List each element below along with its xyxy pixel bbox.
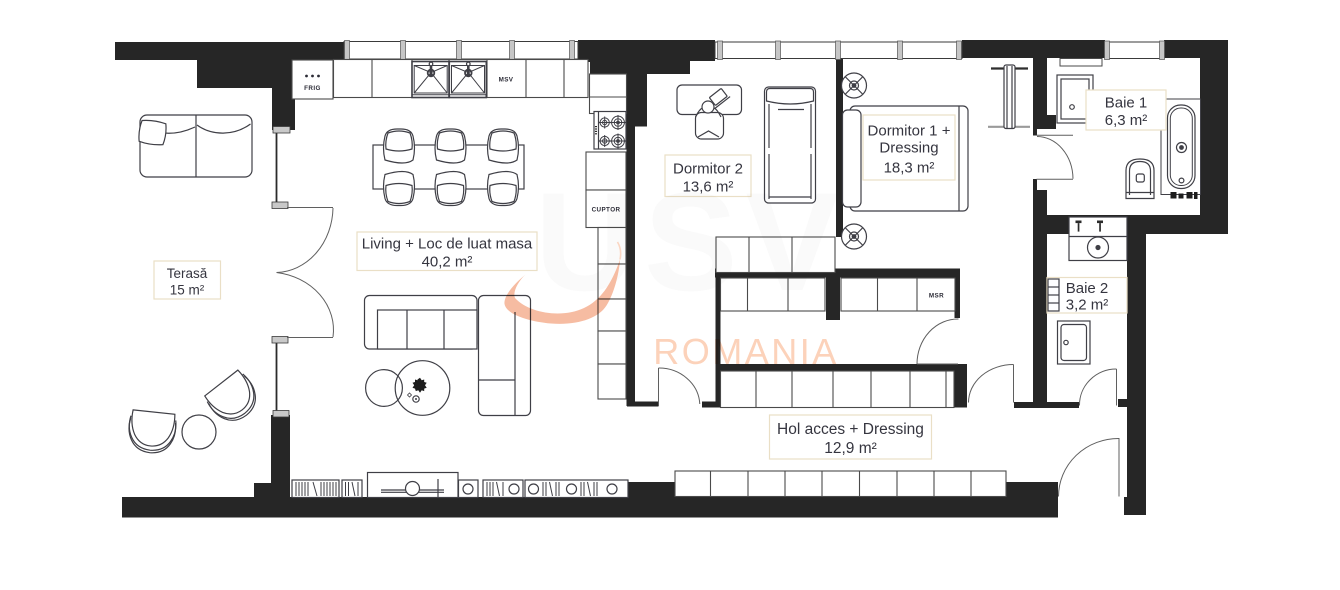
svg-text:Baie 2: Baie 2 [1066, 280, 1109, 297]
svg-text:3,2 m²: 3,2 m² [1066, 297, 1109, 314]
svg-text:Hol acces + Dressing: Hol acces + Dressing [777, 421, 924, 438]
svg-text:15 m²: 15 m² [170, 283, 205, 298]
svg-text:Living + Loc de luat masa: Living + Loc de luat masa [362, 236, 533, 253]
svg-text:FRIG: FRIG [304, 85, 321, 92]
svg-text:Terasă: Terasă [167, 266, 208, 281]
svg-text:6,3 m²: 6,3 m² [1105, 112, 1148, 129]
svg-text:USV: USV [535, 163, 847, 320]
svg-text:18,3 m²: 18,3 m² [884, 160, 935, 177]
svg-text:ROMANIA: ROMANIA [653, 331, 839, 372]
svg-text:Dormitor 1 +: Dormitor 1 + [868, 123, 951, 140]
svg-text:Baie 1: Baie 1 [1105, 95, 1148, 112]
svg-text:12,9 m²: 12,9 m² [824, 440, 877, 457]
svg-text:MSV: MSV [499, 77, 514, 84]
svg-text:Dressing: Dressing [879, 140, 938, 157]
svg-text:40,2 m²: 40,2 m² [422, 254, 473, 271]
svg-text:MSR: MSR [929, 293, 944, 300]
